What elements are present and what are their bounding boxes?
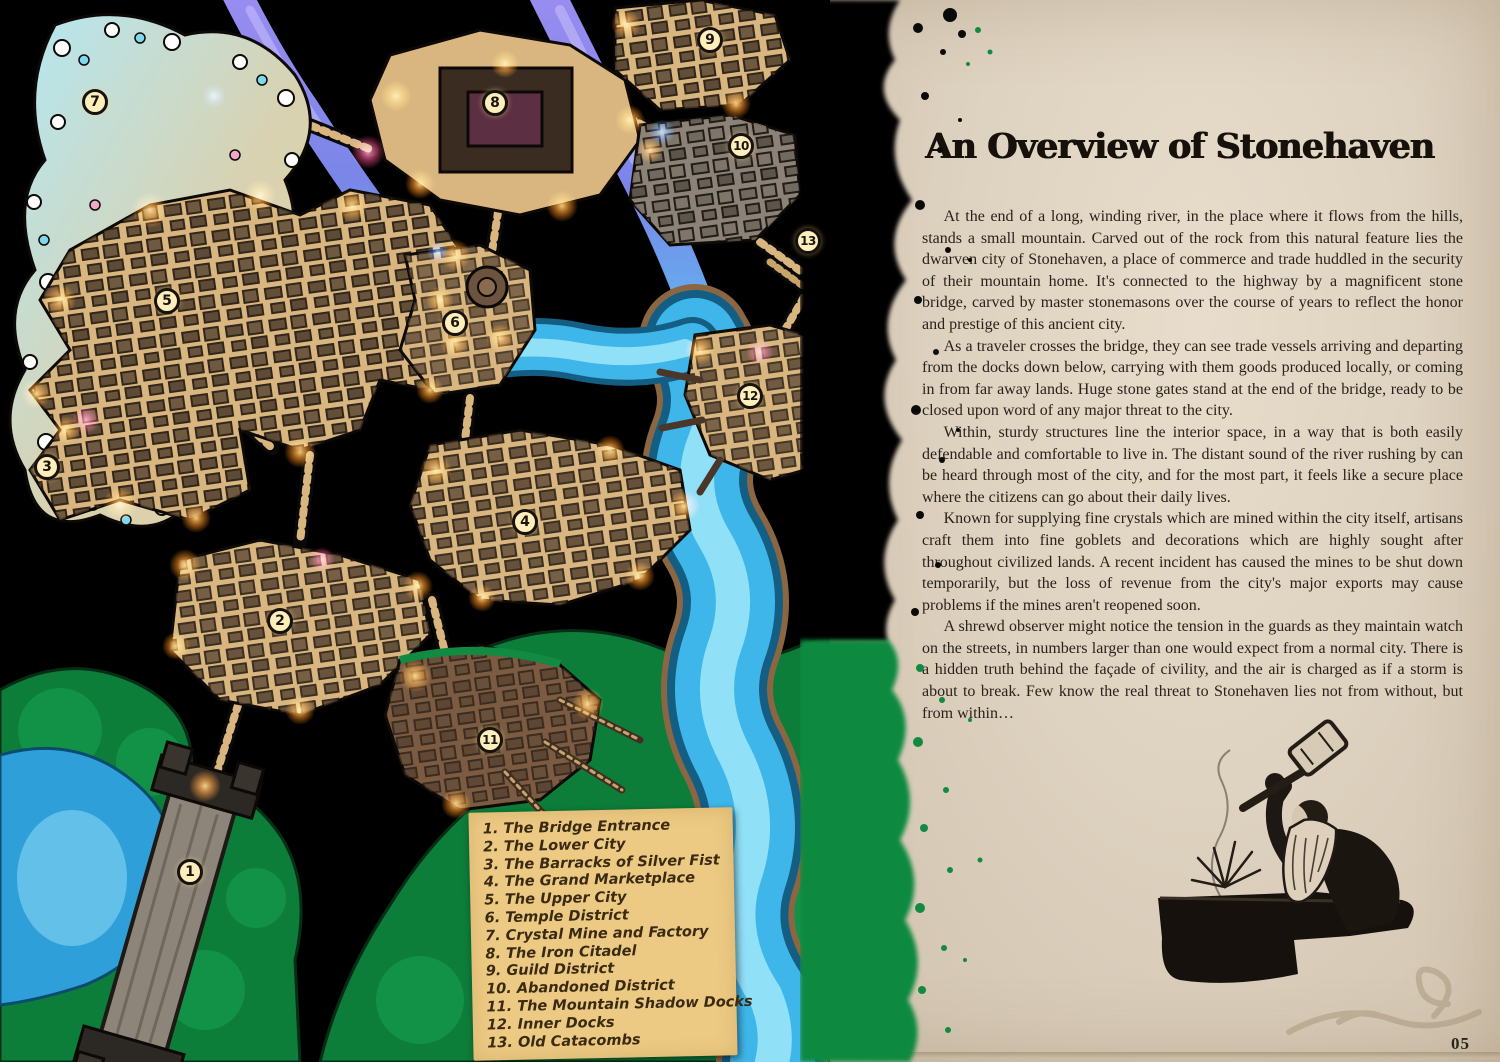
marker-number: 12	[742, 389, 758, 403]
map-marker-abandoned-district: 10	[728, 133, 754, 159]
map-legend: 1. The Bridge Entrance 2. The Lower City…	[468, 807, 737, 1061]
marker-number: 7	[90, 94, 100, 110]
marker-number: 5	[162, 293, 172, 309]
page-title: An Overview of Stonehaven	[925, 126, 1434, 167]
map-marker-old-catacombs: 13	[795, 228, 821, 254]
marker-number: 10	[733, 139, 749, 153]
body-text: At the end of a long, winding river, in …	[922, 206, 1463, 724]
map-marker-temple-district: 6	[442, 310, 468, 336]
map-marker-inner-docks: 12	[737, 383, 763, 409]
marker-number: 8	[490, 95, 500, 111]
marker-number: 1	[185, 864, 195, 880]
marker-number: 2	[275, 613, 285, 629]
marker-number: 3	[42, 459, 52, 475]
marker-number: 4	[520, 514, 530, 530]
paragraph: As a traveler crosses the bridge, they c…	[922, 336, 1463, 422]
marker-number: 13	[800, 234, 816, 248]
dwarf-blacksmith-illustration	[1140, 690, 1440, 990]
map-marker-bridge-entrance: 1	[177, 859, 203, 885]
map-marker-iron-citadel: 8	[482, 90, 508, 116]
map-marker-marketplace: 4	[512, 509, 538, 535]
map-marker-barracks: 3	[34, 454, 60, 480]
page-number: 05	[1451, 1034, 1470, 1054]
footer-rule	[875, 1052, 1500, 1058]
text-page: An Overview of Stonehaven At the end of …	[830, 0, 1500, 1062]
stonehaven-city-map	[0, 0, 900, 1062]
paragraph: Known for supplying fine crystals which …	[922, 508, 1463, 616]
book-spread: An Overview of Stonehaven At the end of …	[0, 0, 1500, 1062]
map-marker-lower-city: 2	[267, 608, 293, 634]
map-marker-mountain-shadow-docks: 11	[477, 727, 503, 753]
map-marker-upper-city: 5	[154, 288, 180, 314]
paragraph: Within, sturdy structures line the inter…	[922, 422, 1463, 508]
marker-number: 9	[705, 32, 715, 48]
marker-number: 6	[450, 315, 460, 331]
map-marker-guild-district: 9	[697, 27, 723, 53]
map-marker-crystal-mine: 7	[82, 89, 108, 115]
marker-number: 11	[482, 733, 498, 747]
paragraph: At the end of a long, winding river, in …	[922, 206, 1463, 336]
